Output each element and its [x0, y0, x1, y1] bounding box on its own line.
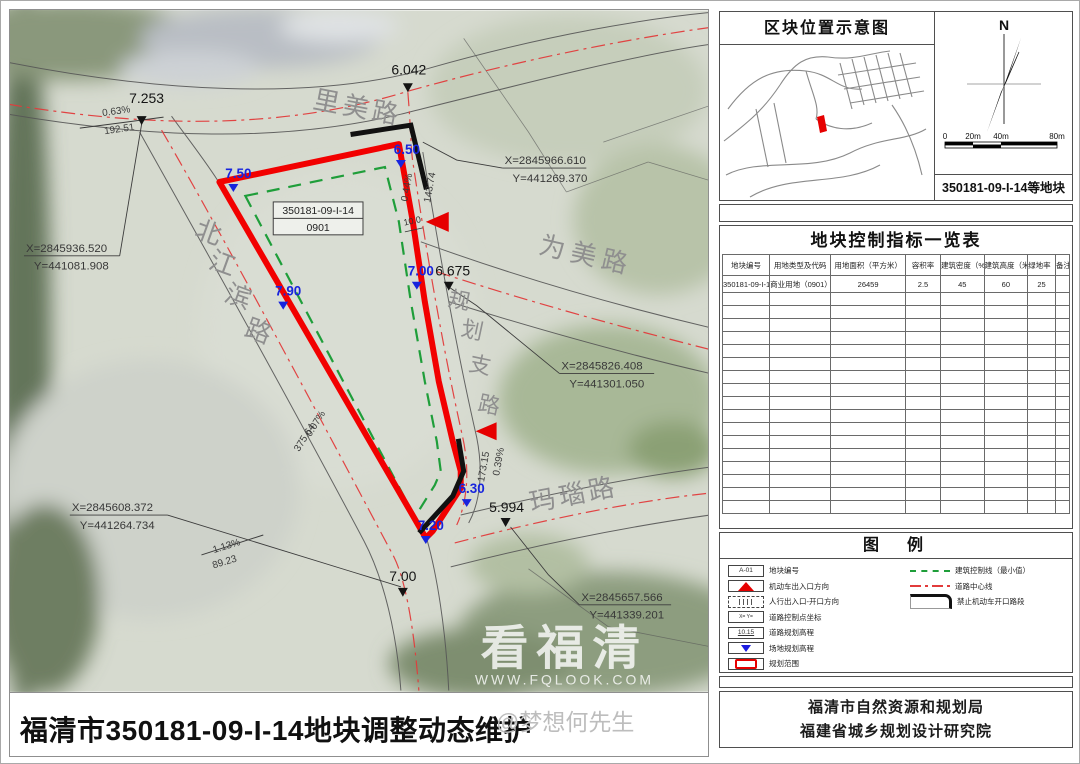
- table-empty-row: [723, 501, 1070, 514]
- coord-callout-4-y: Y=441264.734: [80, 520, 155, 532]
- cell-parcel-no: 350181-09-I-14: [723, 276, 770, 293]
- table-header-row: 地块编号 用地类型及代码 用地面积（平方米） 容积率 建筑密度（%） 建筑高度（…: [723, 255, 1070, 276]
- site-elev-6: 7.20: [418, 518, 444, 533]
- road-elev-1: 7.253: [129, 90, 164, 106]
- indicator-table-empty-body: [723, 293, 1070, 514]
- header-land-use: 用地类型及代码: [770, 255, 831, 276]
- indicator-box: 地块控制指标一览表 地块编号 用地类型及代码 用地面积（平方米） 容积率 建筑密…: [719, 225, 1073, 529]
- scale-tick-20: 20m: [965, 132, 981, 141]
- legend-item-plan-boundary: 规划范围: [728, 656, 908, 672]
- table-empty-row: [723, 358, 1070, 371]
- coord-callout-1-x: X=2845966.610: [505, 155, 586, 167]
- table-data-row: 350181-09-I-14 商业用地（0901） 26459 2.5 45 6…: [723, 276, 1070, 293]
- legend-item-pedestrian-opening: 人行出入口-开口方向: [728, 594, 908, 610]
- map-sheet: X=2845966.610 Y=441269.370 X=2845936.520…: [9, 9, 709, 757]
- north-label: N: [999, 17, 1009, 33]
- north-arrow-icon: N: [935, 12, 1072, 140]
- spacer-box-2: [719, 676, 1073, 688]
- spacer-box-1: [719, 204, 1073, 222]
- coord-callout-1-y: Y=441269.370: [513, 173, 588, 185]
- site-elev-2: 6.50: [394, 142, 420, 157]
- block-label: 350181-09-I-14等地块: [935, 174, 1072, 200]
- coord-callout-5-x: X=2845657.566: [581, 592, 662, 604]
- coord-callout-3-y: Y=441301.050: [569, 378, 644, 390]
- no-opening-icon: [910, 594, 952, 609]
- cell-green: 25: [1028, 276, 1056, 293]
- legend-item-parcel-number: A-01 地块编号: [728, 563, 908, 579]
- legend-item-no-opening: 禁止机动车开口路段: [910, 594, 1070, 610]
- header-green: 绿地率（%）: [1028, 255, 1056, 276]
- table-empty-row: [723, 384, 1070, 397]
- site-elevation-icon: [728, 642, 764, 654]
- header-far: 容积率: [906, 255, 941, 276]
- coord-callout-2-y: Y=441081.908: [34, 261, 109, 273]
- site-elev-4: 7.00: [408, 264, 434, 279]
- watermark-sub: WWW.FQLOOK.COM: [475, 672, 654, 688]
- watermark-main: 看福清: [481, 623, 649, 676]
- cell-far: 2.5: [906, 276, 941, 293]
- table-empty-row: [723, 332, 1070, 345]
- indicator-table: 地块编号 用地类型及代码 用地面积（平方米） 容积率 建筑密度（%） 建筑高度（…: [722, 254, 1070, 514]
- table-empty-row: [723, 462, 1070, 475]
- header-height: 建筑高度（米）: [984, 255, 1028, 276]
- map-watermark: 看福清 WWW.FQLOOK.COM: [475, 623, 654, 688]
- plan-sheet: X=2845966.610 Y=441269.370 X=2845936.520…: [0, 0, 1080, 764]
- plan-boundary-icon: [728, 658, 764, 670]
- legend-title: 图 例: [720, 533, 1072, 559]
- road-elev-4: 5.994: [489, 499, 524, 515]
- legend-item-road-elevation: 10.15 道路规划高程: [728, 625, 908, 641]
- location-sketch-map: [720, 45, 934, 200]
- road-elev-2: 6.042: [391, 61, 426, 77]
- location-box: 区块位置示意图: [719, 11, 1073, 201]
- table-empty-row: [723, 488, 1070, 501]
- pedestrian-opening-icon: [728, 596, 764, 608]
- vehicle-entrance-icon: [728, 580, 764, 592]
- map-canvas: X=2845966.610 Y=441269.370 X=2845936.520…: [10, 10, 708, 692]
- scale-bar: 0 20m 40m 80m: [941, 130, 1067, 156]
- organization-box: 福清市自然资源和规划局 福建省城乡规划设计研究院: [719, 691, 1073, 748]
- header-density: 建筑密度（%）: [940, 255, 984, 276]
- legend-item-building-line: 建筑控制线（最小值）: [910, 563, 1070, 579]
- scale-tick-80: 80m: [1049, 132, 1065, 141]
- table-empty-row: [723, 475, 1070, 488]
- parcel-label-box: 350181-09-I-14 0901: [273, 202, 363, 235]
- site-elev-3: 7.90: [275, 284, 301, 299]
- cell-density: 45: [940, 276, 984, 293]
- site-elev-1: 7.50: [225, 166, 251, 181]
- coord-callout-2-x: X=2845936.520: [26, 243, 107, 255]
- table-empty-row: [723, 410, 1070, 423]
- indicator-table-title: 地块控制指标一览表: [720, 226, 1072, 254]
- legend-item-road-centerline: 道路中心线: [910, 579, 1070, 595]
- table-empty-row: [723, 449, 1070, 462]
- table-empty-row: [723, 345, 1070, 358]
- sheet-title: 福清市350181-09-I-14地块调整动态维护: [20, 709, 532, 749]
- scale-tick-40: 40m: [993, 132, 1009, 141]
- cell-height: 60: [984, 276, 1028, 293]
- legend-box: 图 例 A-01 地块编号 机动车出入口方向 人行出入口-开口方向 X= Y= …: [719, 532, 1073, 673]
- table-empty-row: [723, 293, 1070, 306]
- cell-land-use: 商业用地（0901）: [770, 276, 831, 293]
- road-centerline-icon: [910, 585, 950, 587]
- legend-right-column: 建筑控制线（最小值） 道路中心线 禁止机动车开口路段: [910, 563, 1070, 671]
- table-empty-row: [723, 319, 1070, 332]
- table-empty-row: [723, 371, 1070, 384]
- coord-callout-3-x: X=2845826.408: [561, 360, 642, 372]
- scale-tick-0: 0: [943, 132, 948, 141]
- org-line-2: 福建省城乡规划设计研究院: [800, 720, 992, 743]
- control-point-icon: X= Y=: [728, 611, 764, 623]
- legend-item-site-elevation: 场地规划高程: [728, 641, 908, 657]
- cell-area: 26459: [831, 276, 906, 293]
- plan-map-svg: X=2845966.610 Y=441269.370 X=2845936.520…: [10, 10, 708, 692]
- table-empty-row: [723, 423, 1070, 436]
- table-empty-row: [723, 306, 1070, 319]
- north-scale-column: N 0 20m 40m 80m 350181-09-I-14等地块: [935, 12, 1072, 200]
- table-empty-row: [723, 436, 1070, 449]
- parcel-number-icon: A-01: [728, 565, 764, 577]
- sheet-title-bar: 福清市350181-09-I-14地块调整动态维护 @梦想何先生: [10, 692, 708, 756]
- header-parcel-no: 地块编号: [723, 255, 770, 276]
- cell-remark: [1056, 276, 1070, 293]
- road-elevation-icon: 10.15: [728, 627, 764, 639]
- parcel-code: 350181-09-I-14: [282, 206, 354, 217]
- location-map-column: 区块位置示意图: [720, 12, 935, 200]
- road-elev-5: 7.00: [389, 568, 416, 584]
- table-empty-row: [723, 397, 1070, 410]
- building-control-line-icon: [910, 570, 950, 572]
- parcel-use-code: 0901: [306, 223, 329, 234]
- location-map-title: 区块位置示意图: [720, 12, 934, 45]
- author-watermark: @梦想何先生: [496, 703, 634, 737]
- org-line-1: 福清市自然资源和规划局: [808, 696, 984, 719]
- coord-callout-5-y: Y=441339.201: [589, 610, 664, 622]
- header-remark: 备注: [1056, 255, 1070, 276]
- legend-left-column: A-01 地块编号 机动车出入口方向 人行出入口-开口方向 X= Y= 道路控制…: [728, 563, 908, 671]
- legend-item-control-point: X= Y= 道路控制点坐标: [728, 610, 908, 626]
- header-area: 用地面积（平方米）: [831, 255, 906, 276]
- site-elev-5: 6.30: [459, 481, 485, 496]
- legend-item-vehicle-entrance: 机动车出入口方向: [728, 579, 908, 595]
- coord-callout-4-x: X=2845608.372: [72, 502, 153, 514]
- road-elev-3: 6.675: [435, 263, 470, 279]
